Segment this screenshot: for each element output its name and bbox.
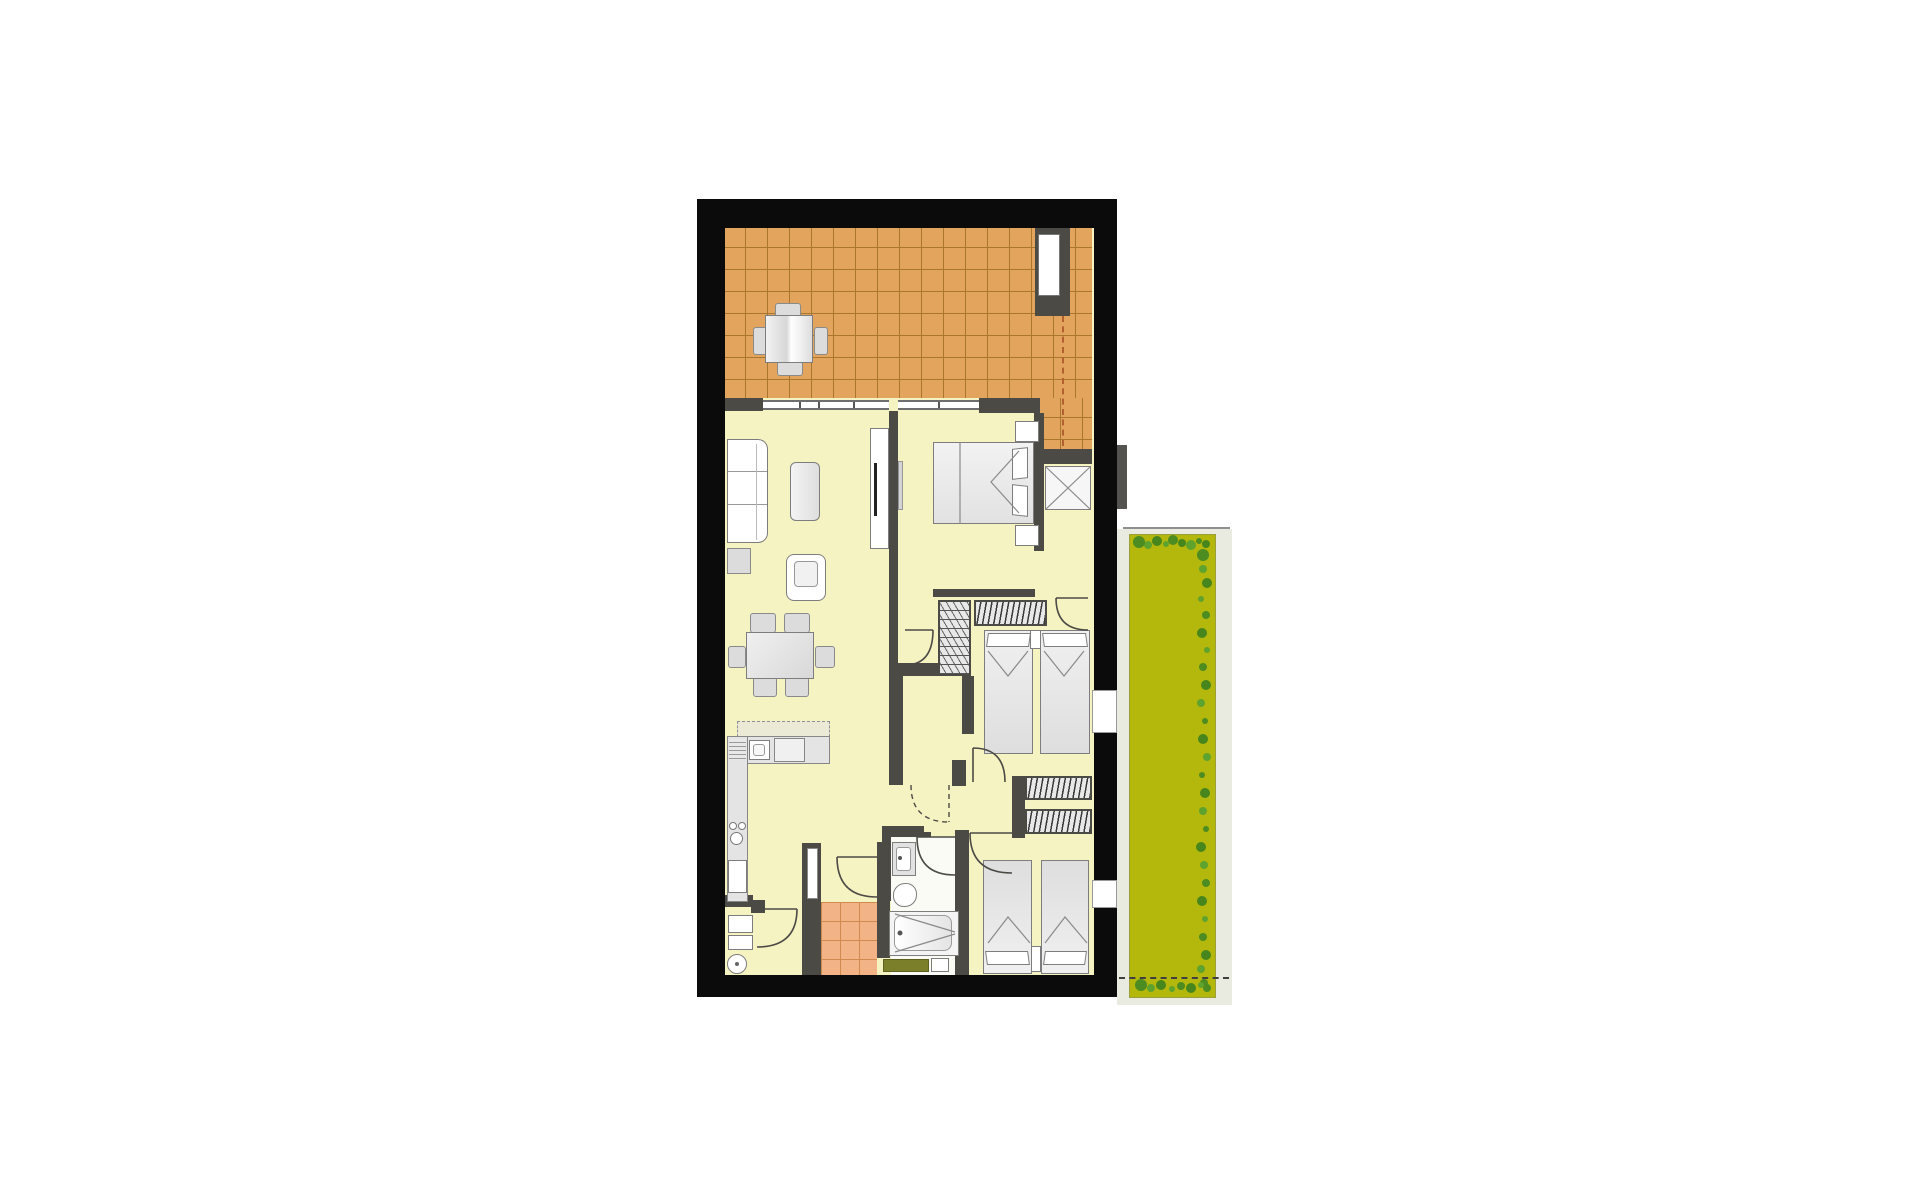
bedroom1-window <box>898 400 979 410</box>
dining-chair-s2 <box>785 677 809 697</box>
wall-utility-right <box>877 842 891 901</box>
hedge-right <box>1197 549 1209 561</box>
bedroom2-pillow-left <box>986 633 1031 647</box>
garden-boundary-dashed-line <box>1119 977 1229 979</box>
dining-table <box>746 632 814 679</box>
hob-burner-small1 <box>729 822 737 830</box>
dining-chair-n1 <box>750 613 776 633</box>
washbasin-cabinet <box>892 842 916 876</box>
bedroom2-bed-left <box>984 630 1033 754</box>
bedroom1-pillow-1 <box>1012 447 1028 480</box>
wall-closets-divider <box>1012 776 1025 838</box>
wc-toilet <box>727 954 747 974</box>
kitchen-upper-cabinets <box>737 721 830 737</box>
armchair <box>786 554 826 601</box>
bedroom3-garden-window <box>1092 880 1117 908</box>
bedroom1-nightstand-north <box>1015 421 1039 442</box>
terrace-duct-recess <box>1038 234 1060 296</box>
wall-bedroom1-south <box>933 589 1035 597</box>
wall-storage-top <box>903 663 939 676</box>
bedroom1-nightstand-south <box>1015 525 1039 546</box>
toilet <box>893 883 917 907</box>
utility-shelf-niche <box>807 848 818 899</box>
kitchen-sink <box>749 740 770 760</box>
wall-terrace-left-stub <box>725 398 763 411</box>
hall-closet <box>938 600 971 676</box>
basin-faucet-icon <box>898 856 902 860</box>
bedroom3-closet-lower <box>1025 809 1092 834</box>
dining-chair-s1 <box>753 677 777 697</box>
bedroom3-nightstand <box>1031 946 1041 972</box>
wall-living-bedroom1 <box>889 411 898 663</box>
dining-chair-n2 <box>784 613 810 633</box>
hob-burner-large <box>730 832 743 845</box>
bedroom2-nightstand <box>1030 630 1041 649</box>
bedroom1-wall-mirror <box>898 461 903 510</box>
exterior-pillar <box>1117 445 1127 509</box>
tv-icon <box>874 463 877 516</box>
terrace-floor-notch <box>1040 398 1092 449</box>
wc-shower-tray <box>728 915 753 933</box>
bedroom3-closet-upper <box>1025 776 1092 800</box>
side-table <box>727 548 751 574</box>
bedroom1-pillow-2 <box>1012 484 1028 517</box>
kitchen-fridge <box>728 860 747 893</box>
bedroom3-pillow-right <box>1043 951 1087 965</box>
utility-room-floor <box>821 902 877 975</box>
terrace-chair-south <box>777 361 803 376</box>
wc-shower-lower <box>728 935 753 950</box>
bathtub <box>889 911 959 956</box>
floor-plan-page <box>0 0 1920 1200</box>
wall-storage-right <box>962 676 974 734</box>
bedroom2-bed-right <box>1040 630 1090 754</box>
hob-burner-small2 <box>738 822 746 830</box>
wall-terrace-right-stub <box>979 398 1040 413</box>
wall-wc-door-stub <box>751 900 765 913</box>
hedge-bottom <box>1135 979 1147 991</box>
hedge-top <box>1133 536 1145 548</box>
apartment-plan <box>697 199 1117 997</box>
bedroom2-closet <box>974 600 1047 626</box>
dining-chair-w <box>728 646 746 668</box>
terrace-table <box>765 315 813 363</box>
wall-storage-left <box>889 663 903 785</box>
wall-storage-corner <box>952 760 966 786</box>
terrace-dashed-line <box>1062 316 1064 446</box>
bedroom3-pillow-left <box>985 951 1030 965</box>
bedroom1-wardrobe <box>1045 466 1091 510</box>
bathroom-washer <box>931 958 949 972</box>
garden-lawn <box>1129 534 1216 998</box>
bedroom2-pillow-right <box>1042 633 1088 647</box>
garden-strip <box>1117 527 1232 1005</box>
bath-mat <box>883 959 929 972</box>
sofa <box>727 439 768 543</box>
living-room-window <box>763 400 889 410</box>
wall-bathroom-top <box>882 826 924 837</box>
dining-chair-e <box>815 646 835 668</box>
kitchen-cooker <box>774 738 805 762</box>
wall-under-notch <box>1040 449 1092 464</box>
garden-top-border <box>1123 527 1230 529</box>
terrace-chair-east <box>814 327 828 355</box>
coffee-table <box>790 462 820 521</box>
kitchen-drainer <box>729 739 746 760</box>
tv-sideboard <box>870 428 889 549</box>
bedroom2-garden-window <box>1092 690 1117 733</box>
